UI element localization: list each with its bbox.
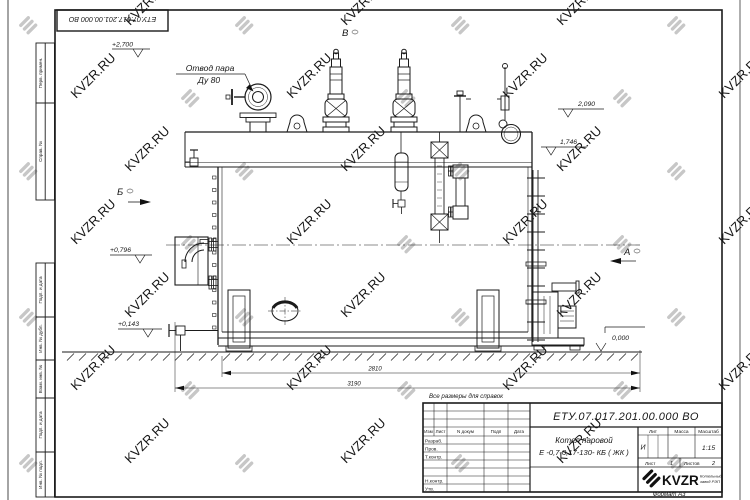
col-izm: Изм [424,429,432,434]
corner-stamp: ЕТУ.07.017.201.00.000 ВО [57,10,168,31]
row-utv: Утв. [425,487,434,493]
row-prov: Пров. [425,447,438,453]
sheet-label: Лист [645,461,656,467]
row-nkontr: Н.контр. [425,479,443,485]
annotations: Отвод пара Ду 80 Б В А +2,700 [110,28,645,400]
col-list: Лист [436,429,446,434]
callout-line2: Ду 80 [197,75,220,85]
watermark-text: KVZR.RU [122,415,173,466]
rear-ladder [526,170,546,342]
kvzr-logo: KVZR Котельный завод РЭП [642,469,723,488]
col-podp: Подп [491,429,502,434]
elevation-plus0796: +0,796 [110,247,152,263]
watermark-text: KVZR.RU [338,269,389,320]
watermark-text: KVZR.RU [284,196,335,247]
kvzr-logo-sub1: Котельный [700,474,723,479]
view-v-label: В [342,28,349,39]
sheet-value: 1 [670,461,673,467]
view-a-arrow [610,258,621,264]
watermark-stripes-icon [666,161,686,181]
watermark-text: KVZR.RU [500,196,551,247]
sheets-label: Листов [684,461,700,467]
watermark-text: KVZR.RU [554,123,605,174]
elevation-plus2700: +2,700 [112,42,150,58]
drain-valve [169,324,218,351]
watermark-stripes-icon [396,380,416,400]
margin-label: Инв. № дубл. [38,324,43,352]
watermark-text: KVZR.RU [716,342,750,393]
watermark-stripes-icon [666,307,686,327]
kvzr-logo-sub2: завод РЭП [699,479,720,484]
elevation-label: 2,090 [577,101,595,108]
callout-line1: Отвод пара [186,63,235,73]
watermark-text: KVZR.RU [68,196,119,247]
watermark-stripes-icon [396,234,416,254]
gauge-connectors [448,166,453,217]
product-name-line1: Котел паровой [555,436,613,445]
dim-label-2810: 2810 [367,367,382,373]
watermark-stripes-icon [180,380,200,400]
title-block: ЕТУ.07.017.201.00.000 ВО Котел паровой Е… [423,403,723,498]
top-left-valve [185,150,198,166]
watermark-stripes-icon [666,15,686,35]
watermark-text: KVZR.RU [338,0,389,28]
watermark-stripes-icon [234,307,254,327]
water-gauge-assembly [393,132,468,243]
view-b: Б [117,187,151,205]
view-b-label: Б [117,187,123,198]
margin-label: Инв. № подл. [38,460,43,489]
corner-stamp-doc-number: ЕТУ.07.017.201.00.000 ВО [68,15,156,24]
elevation-zero: 0,000 [596,327,645,351]
elevation-label: +0,143 [118,321,139,328]
watermark-stripes-icon [450,307,470,327]
steam-outlet-valve [226,84,276,132]
watermark-layer: KVZR.RUKVZR.RUKVZR.RUKVZR.RUKVZR.RUKVZR.… [18,0,750,473]
massa-label: Масса [674,429,689,435]
watermark-stripes-icon [234,15,254,35]
watermark-text: KVZR.RU [284,50,335,101]
boiler-drawing-svg: KVZR.RUKVZR.RUKVZR.RUKVZR.RUKVZR.RUKVZR.… [0,0,750,500]
watermark-text: KVZR.RU [500,50,551,101]
col-data: Дата [514,429,524,434]
watermark-stripes-icon [18,15,38,35]
watermark-text: KVZR.RU [284,342,335,393]
ground [62,352,642,361]
elevation-label: 1,746 [560,139,577,146]
steam-outlet-callout: Отвод пара Ду 80 [176,63,254,92]
margin-label: Подп. и дата [38,411,43,439]
elevation-label: +2,700 [112,42,133,49]
watermark-stripes-icon [234,453,254,473]
reference-note: Все размеры для справок [429,393,504,400]
watermark-stripes-icon [450,15,470,35]
boiler-side-view [166,49,640,351]
elevation-label: 0,000 [612,335,629,342]
watermark-stripes-icon [18,307,38,327]
watermark-stripes-icon [18,453,38,473]
view-a: А [610,247,640,264]
watermark-text: KVZR.RU [122,123,173,174]
view-v: В [342,28,358,39]
title-block-header-cells: Изм Лист N докум Подп Дата [424,429,524,434]
margin-label: Справ. № [38,141,43,162]
watermark-text: KVZR.RU [68,50,119,101]
front-face-studs [213,176,217,329]
margin-label: Перв. примен. [38,58,43,89]
elevation-plus0143: +0,143 [118,321,162,337]
kvzr-logo-text: KVZR [662,473,699,488]
product-name-line2: Е -0,7-0,17-130- КБ ( ЖК ) [539,448,629,457]
watermark-stripes-icon [450,453,470,473]
row-tkontr: Т.контр. [425,455,442,461]
scale-value: 1:15 [702,445,715,452]
watermark-text: KVZR.RU [554,269,605,320]
watermark-stripes-icon [396,88,416,108]
col-ndokum: N докум [457,429,474,434]
watermark-stripes-icon [612,380,632,400]
margin-box-labels: Перв. примен. Справ. № Подп. и дата Инв.… [38,58,43,489]
watermark-stripes-icon [180,88,200,108]
view-a-label: А [623,247,630,258]
elevation-2090: 2,090 [558,101,604,117]
title-block-row-labels: Разраб. Пров. Т.контр. Н.контр. Утв. [425,439,443,493]
kvzr-logo-icon [642,469,661,488]
lit-value: И [640,445,646,452]
row-razrab: Разраб. [425,439,442,445]
lifting-lugs [287,115,486,132]
watermark-text: KVZR.RU [68,342,119,393]
safety-valve-2 [391,49,417,132]
lit-label: Лит [649,429,658,435]
dim-label-3190: 3190 [347,382,361,388]
format-note: Формат А3 [653,492,686,498]
watermark-stripes-icon [612,88,632,108]
ground-hatching [67,354,638,361]
watermark-stripes-icon [234,161,254,181]
sheets-value: 2 [711,461,715,467]
watermark-text: KVZR.RU [716,50,750,101]
view-b-arrow [140,199,151,205]
standpipe [454,91,471,132]
manhole [268,297,302,325]
watermark-stripes-icon [18,161,38,181]
title-doc-number: ЕТУ.07.017.201.00.000 ВО [553,411,699,423]
watermark-text: KVZR.RU [338,415,389,466]
watermark-text: KVZR.RU [122,269,173,320]
watermark-text: KVZR.RU [554,0,605,28]
drawing-sheet: KVZR.RUKVZR.RUKVZR.RUKVZR.RUKVZR.RUKVZR.… [0,0,750,500]
boiler-body [213,132,585,346]
watermark-text: KVZR.RU [716,196,750,247]
margin-label: Подп. и дата [38,276,43,304]
scale-label: Масштаб [698,429,719,435]
margin-label: Взам. инв. № [38,365,43,394]
elevation-label: +0,796 [110,247,131,254]
